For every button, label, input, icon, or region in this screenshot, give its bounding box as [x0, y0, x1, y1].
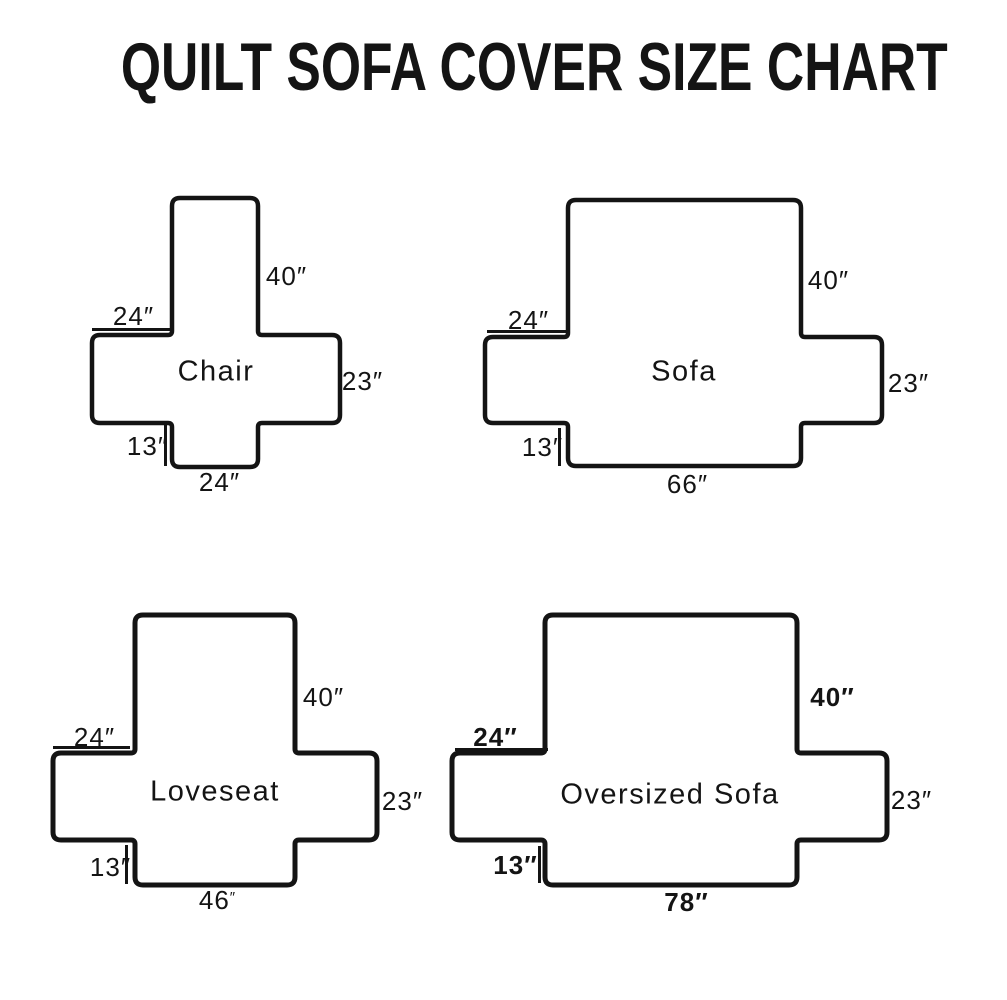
sofa-arm-width-label: 24″ [508, 307, 548, 333]
chair-name-label: Chair [178, 358, 255, 387]
loveseat-front-drop-label: 13″ [90, 854, 130, 880]
sofa-front-width-label: 66″ [667, 471, 707, 497]
chair-front-width-label: 24″ [199, 469, 239, 495]
loveseat-side-height-label: 23″ [382, 788, 422, 814]
loveseat-back-height-label: 40″ [303, 684, 343, 710]
chair-outline-shape [92, 198, 340, 467]
sofa-name-label: Sofa [651, 358, 717, 387]
sofa-front-drop-label: 13″ [522, 434, 562, 460]
sofa-side-height-label: 23″ [888, 370, 928, 396]
chair-arm-width-label: 24″ [113, 303, 153, 329]
oversized-sofa-side-height-label: 23″ [891, 787, 931, 813]
loveseat-front-width-label: 46″ [199, 887, 235, 913]
oversized-sofa-name-label: Oversized Sofa [560, 781, 779, 810]
loveseat-arm-width-label: 24″ [74, 724, 114, 750]
oversized-sofa-back-height-label: 40″ [810, 684, 853, 710]
oversized-sofa-arm-width-label: 24″ [473, 724, 516, 750]
chair-back-height-label: 40″ [266, 263, 306, 289]
size-chart-page: QUILT SOFA COVER SIZE CHART Chair 40″ 24… [0, 0, 1007, 1000]
loveseat-name-label: Loveseat [150, 778, 280, 807]
oversized-sofa-front-drop-label: 13″ [493, 852, 536, 878]
sofa-back-height-label: 40″ [808, 267, 848, 293]
oversized-sofa-front-width-label: 78″ [664, 889, 707, 915]
chair-front-drop-label: 13″ [127, 433, 167, 459]
chair-side-height-label: 23″ [342, 368, 382, 394]
